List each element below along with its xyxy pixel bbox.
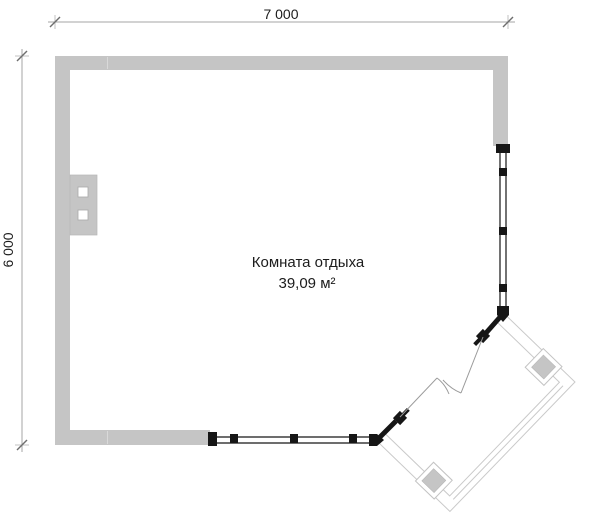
wall-left xyxy=(55,56,70,445)
window-post xyxy=(208,432,217,446)
walls xyxy=(55,56,508,445)
window-mullion xyxy=(499,168,507,176)
room-name: Комната отдыха xyxy=(252,254,365,271)
window-mullion xyxy=(290,434,298,443)
stove-flue-opening xyxy=(78,210,88,220)
window-mullion xyxy=(230,434,238,443)
stove xyxy=(70,175,97,235)
top-dimension: 7 000 xyxy=(48,6,515,29)
width-dimension-label: 7 000 xyxy=(263,6,298,22)
room-area: 39,09 м² xyxy=(278,275,335,292)
stove-flue-opening xyxy=(78,187,88,197)
terrace-step-line xyxy=(453,386,563,500)
window-mullion xyxy=(349,434,357,443)
door-leaf xyxy=(461,337,483,393)
floor-plan-drawing: 7 000 6 000 xyxy=(0,0,600,526)
wall-stub xyxy=(486,316,501,333)
door-leaf xyxy=(400,378,437,417)
terrace-inner-outline xyxy=(386,320,560,495)
door-swing-arc xyxy=(443,380,461,393)
wall-stub xyxy=(380,421,396,437)
window-bottom xyxy=(208,432,384,446)
stove-body xyxy=(70,175,97,235)
double-door xyxy=(393,329,490,425)
wall-bottom xyxy=(55,430,210,445)
wall-right xyxy=(493,56,508,146)
left-dimension: 6 000 xyxy=(0,49,29,452)
floor-plan-canvas: 7 000 6 000 xyxy=(0,0,600,526)
window-right xyxy=(496,144,510,322)
height-dimension-label: 6 000 xyxy=(0,232,16,267)
room-label: Комната отдыха 39,09 м² xyxy=(252,254,365,292)
wall-top xyxy=(55,56,508,70)
window-post xyxy=(496,144,510,153)
window-mullion xyxy=(499,227,507,235)
window-mullion xyxy=(499,284,507,292)
